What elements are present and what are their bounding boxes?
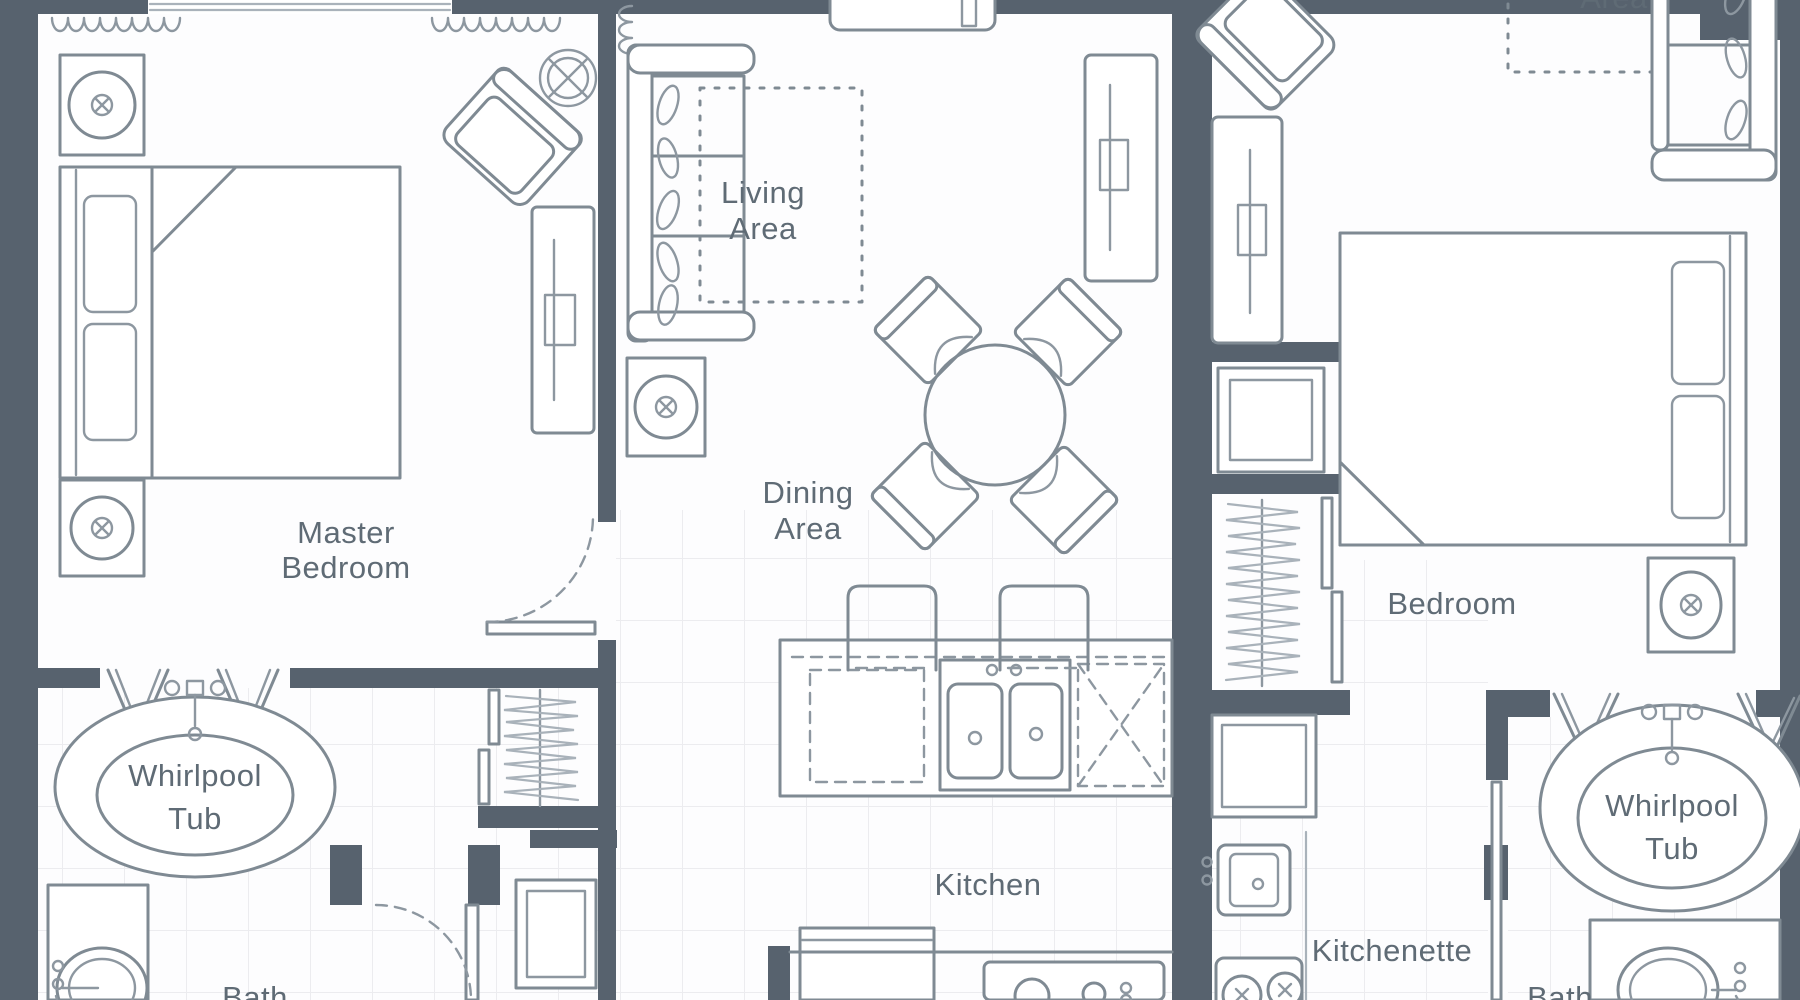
master-living-wall-upper	[598, 0, 616, 522]
nightstand	[1648, 558, 1734, 652]
outer-left-wall	[0, 0, 38, 1000]
nightstand	[60, 480, 144, 576]
master-bath-wall-right	[290, 668, 478, 688]
master-closet-bottom-wall	[478, 806, 616, 828]
throw-pillow-icon	[653, 83, 684, 326]
master-bedroom-door	[487, 516, 595, 634]
master-bath-door-stub-right	[468, 845, 500, 905]
whirlpool-tub-label: Whirlpool	[128, 758, 262, 793]
bath-label-partial: Bath	[222, 980, 288, 1000]
range-cooktop	[984, 962, 1164, 1000]
living-area-room: Living Area	[619, 0, 1157, 456]
master-bedroom-window	[148, 0, 452, 14]
guest-bedroom-room: Bedroom Area	[1193, 0, 1776, 652]
end-table-lamp	[627, 358, 705, 456]
master-bedroom-label: Bedroom	[281, 550, 410, 585]
dresser-tv-console	[532, 207, 594, 433]
dining-area-label: Dining	[763, 475, 854, 510]
sliding-door	[1492, 782, 1501, 1000]
whirlpool-tub-label: Tub	[1645, 831, 1699, 866]
floor-plan-drawing: Master Bedroom Whirlpool	[0, 0, 1800, 1000]
sliding-door	[479, 750, 489, 804]
dining-area-label: Area	[774, 511, 842, 546]
shower-stall	[516, 880, 596, 988]
living-area-label: Living	[721, 175, 805, 210]
dining-area-room: Dining Area	[763, 275, 1124, 555]
kitchen-island	[780, 640, 1172, 796]
whirlpool-tub: Whirlpool Tub	[1540, 705, 1800, 911]
refrigerator	[800, 928, 934, 1000]
vanity-sink	[48, 885, 148, 1000]
master-bath-door-stub-left	[330, 845, 362, 905]
tv-console	[1212, 117, 1282, 343]
mini-fridge	[1212, 715, 1316, 817]
whirlpool-tub-label: Tub	[168, 801, 222, 836]
sliding-door	[489, 690, 499, 744]
unit-divider-wall	[1172, 0, 1212, 1000]
ceiling-fan-icon	[540, 50, 596, 106]
nightstand	[60, 55, 144, 155]
guest-bed	[1340, 233, 1746, 545]
guest-niche-top-wall	[1172, 342, 1345, 362]
floor-plan-canvas: Master Bedroom Whirlpool	[0, 0, 1800, 1000]
master-bath-wall-left	[36, 668, 100, 688]
living-area-label: Area	[729, 211, 797, 246]
tv-console	[1085, 55, 1157, 281]
kitchen-wall-stub	[768, 946, 790, 1000]
armchair	[1193, 0, 1339, 113]
guest-storage	[1218, 368, 1342, 686]
master-bedroom-label: Master	[297, 515, 395, 550]
closet-with-hangers	[1226, 498, 1342, 686]
master-shower-top-wall	[530, 830, 617, 848]
top-right-label-partial: Area	[1580, 0, 1648, 15]
curtain-squiggle-icon	[52, 18, 180, 31]
kitchenette-cooktop	[1216, 958, 1302, 1000]
washer-cabinet	[1218, 368, 1324, 472]
master-bedroom-room: Master Bedroom	[52, 18, 596, 634]
master-bed	[60, 167, 400, 478]
vanity-sink	[1590, 920, 1780, 1000]
dining-chair	[873, 275, 983, 385]
kitchenette-corridor-tile	[1340, 560, 1488, 715]
bath-label-partial: Bath	[1527, 980, 1593, 1000]
kitchenette-label: Kitchenette	[1312, 933, 1473, 968]
curtain-squiggle-icon	[432, 18, 560, 31]
whirlpool-tub-label: Whirlpool	[1605, 788, 1739, 823]
guest-closet-bottom-wall	[1172, 690, 1350, 715]
credenza	[830, 0, 995, 30]
bedroom-label: Bedroom	[1387, 586, 1516, 621]
master-closet-top-wall	[478, 668, 598, 688]
guest-niche-mid-wall	[1172, 474, 1345, 494]
armchair	[439, 65, 585, 210]
dining-chair	[1013, 277, 1123, 387]
dining-table	[925, 345, 1065, 485]
guest-corridor-wall	[1486, 690, 1508, 780]
sliding-door	[1322, 498, 1332, 588]
kitchen-label: Kitchen	[935, 867, 1042, 902]
sliding-door	[1332, 592, 1342, 682]
